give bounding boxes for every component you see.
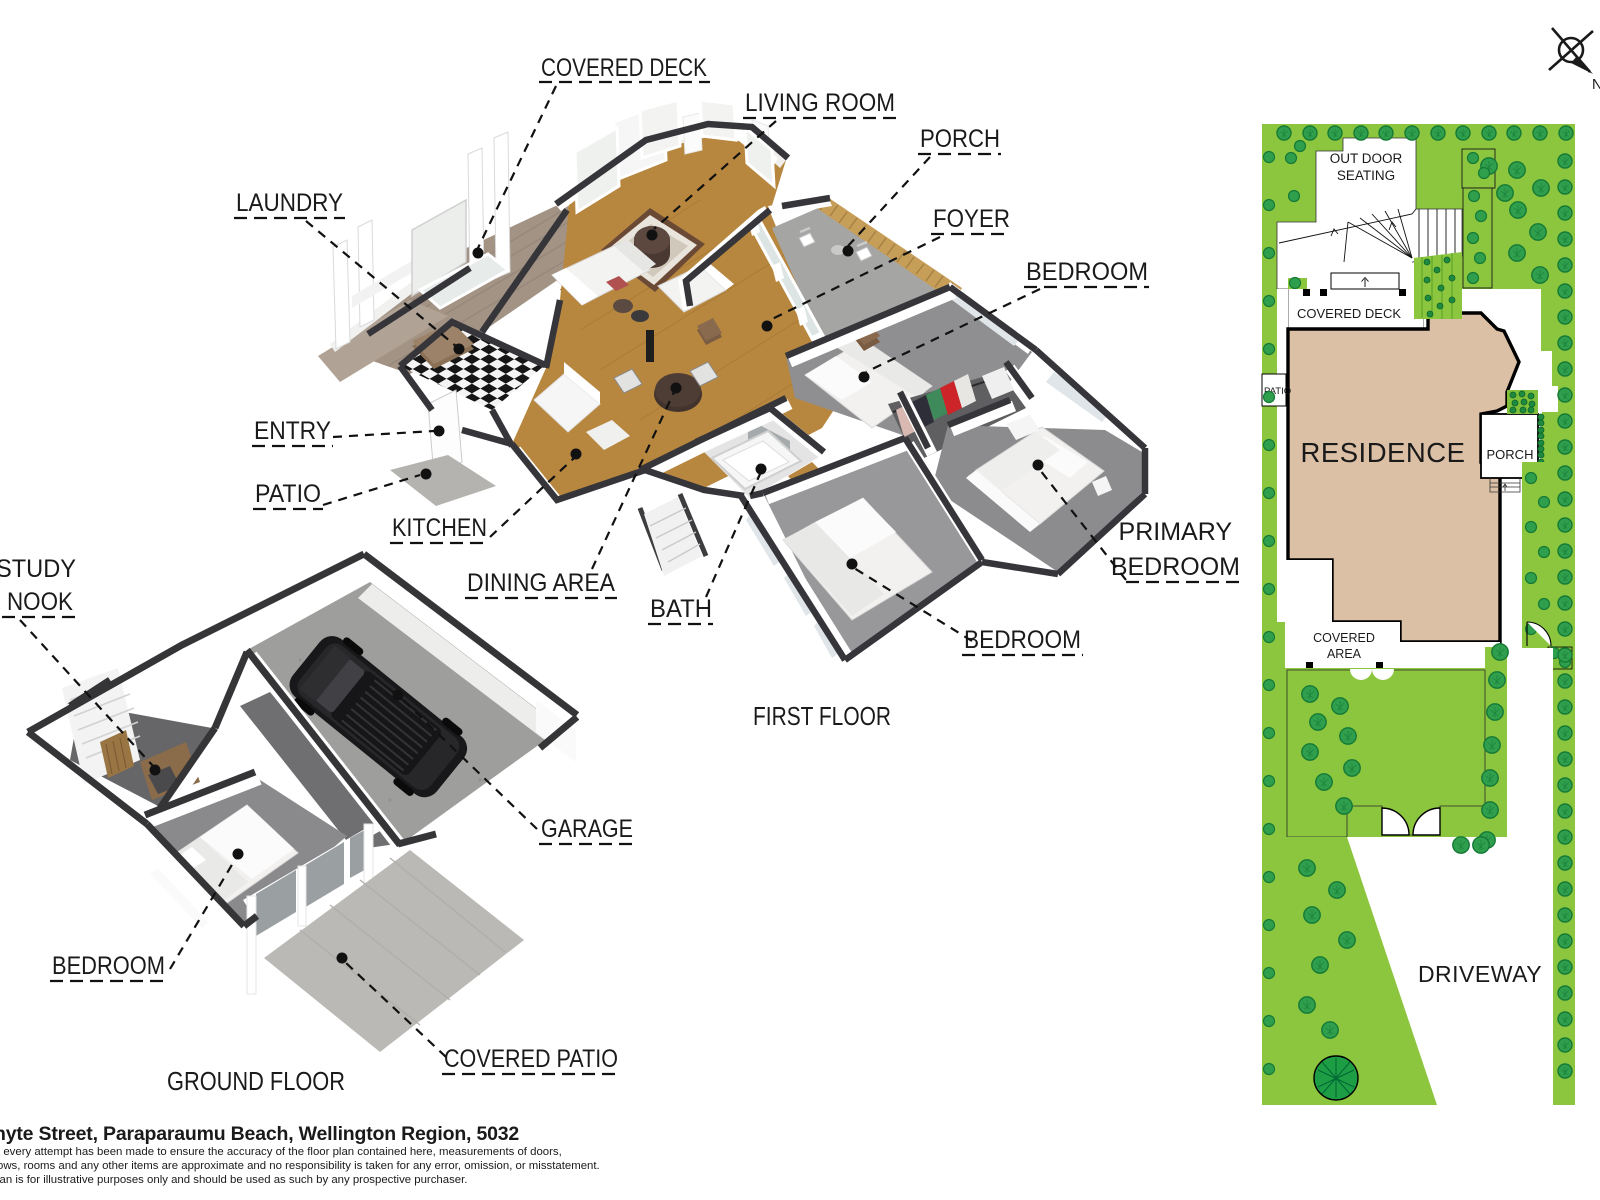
- svg-text:ows, rooms and any other items: ows, rooms and any other items are appro…: [0, 1160, 600, 1172]
- svg-text:NOOK: NOOK: [7, 588, 73, 616]
- svg-text:COVERED DECK: COVERED DECK: [541, 54, 707, 82]
- svg-text:LAUNDRY: LAUNDRY: [236, 189, 343, 217]
- svg-text:BATH: BATH: [650, 595, 712, 623]
- svg-text:PORCH: PORCH: [920, 125, 1000, 153]
- svg-text:RESIDENCE: RESIDENCE: [1301, 437, 1466, 468]
- svg-text:ENTRY: ENTRY: [254, 417, 331, 445]
- svg-text:GARAGE: GARAGE: [541, 815, 633, 843]
- svg-text:PORCH: PORCH: [1487, 447, 1534, 462]
- svg-text:FIRST FLOOR: FIRST FLOOR: [753, 701, 891, 731]
- svg-text:OUT DOOR: OUT DOOR: [1330, 151, 1403, 166]
- svg-text:N: N: [1592, 77, 1600, 93]
- svg-text:FOYER: FOYER: [933, 205, 1010, 233]
- svg-text:DRIVEWAY: DRIVEWAY: [1418, 961, 1542, 987]
- svg-text:lan is for illustrative purpos: lan is for illustrative purposes only an…: [0, 1174, 467, 1186]
- svg-text:STUDY: STUDY: [0, 555, 76, 583]
- svg-text:COVERED DECK: COVERED DECK: [1297, 306, 1401, 321]
- svg-text:BEDROOM: BEDROOM: [52, 952, 165, 980]
- svg-text:GROUND FLOOR: GROUND FLOOR: [167, 1066, 345, 1096]
- svg-text:KITCHEN: KITCHEN: [392, 514, 487, 542]
- svg-text:BEDROOM: BEDROOM: [1111, 553, 1240, 581]
- svg-text:SEATING: SEATING: [1337, 168, 1395, 183]
- svg-text:t every attempt has been made: t every attempt has been made to ensure …: [0, 1146, 562, 1158]
- svg-text:COVERED: COVERED: [1313, 631, 1375, 645]
- svg-text:hyte Street, Paraparaumu Beach: hyte Street, Paraparaumu Beach, Wellingt…: [0, 1123, 519, 1145]
- svg-text:BEDROOM: BEDROOM: [964, 626, 1081, 654]
- svg-text:AREA: AREA: [1327, 647, 1362, 661]
- svg-text:PATIO: PATIO: [255, 480, 321, 508]
- svg-text:PRIMARY: PRIMARY: [1119, 518, 1233, 546]
- svg-text:BEDROOM: BEDROOM: [1026, 258, 1148, 286]
- svg-text:LIVING ROOM: LIVING ROOM: [745, 89, 895, 117]
- svg-text:DINING AREA: DINING AREA: [467, 569, 615, 597]
- svg-text:COVERED PATIO: COVERED PATIO: [444, 1045, 618, 1073]
